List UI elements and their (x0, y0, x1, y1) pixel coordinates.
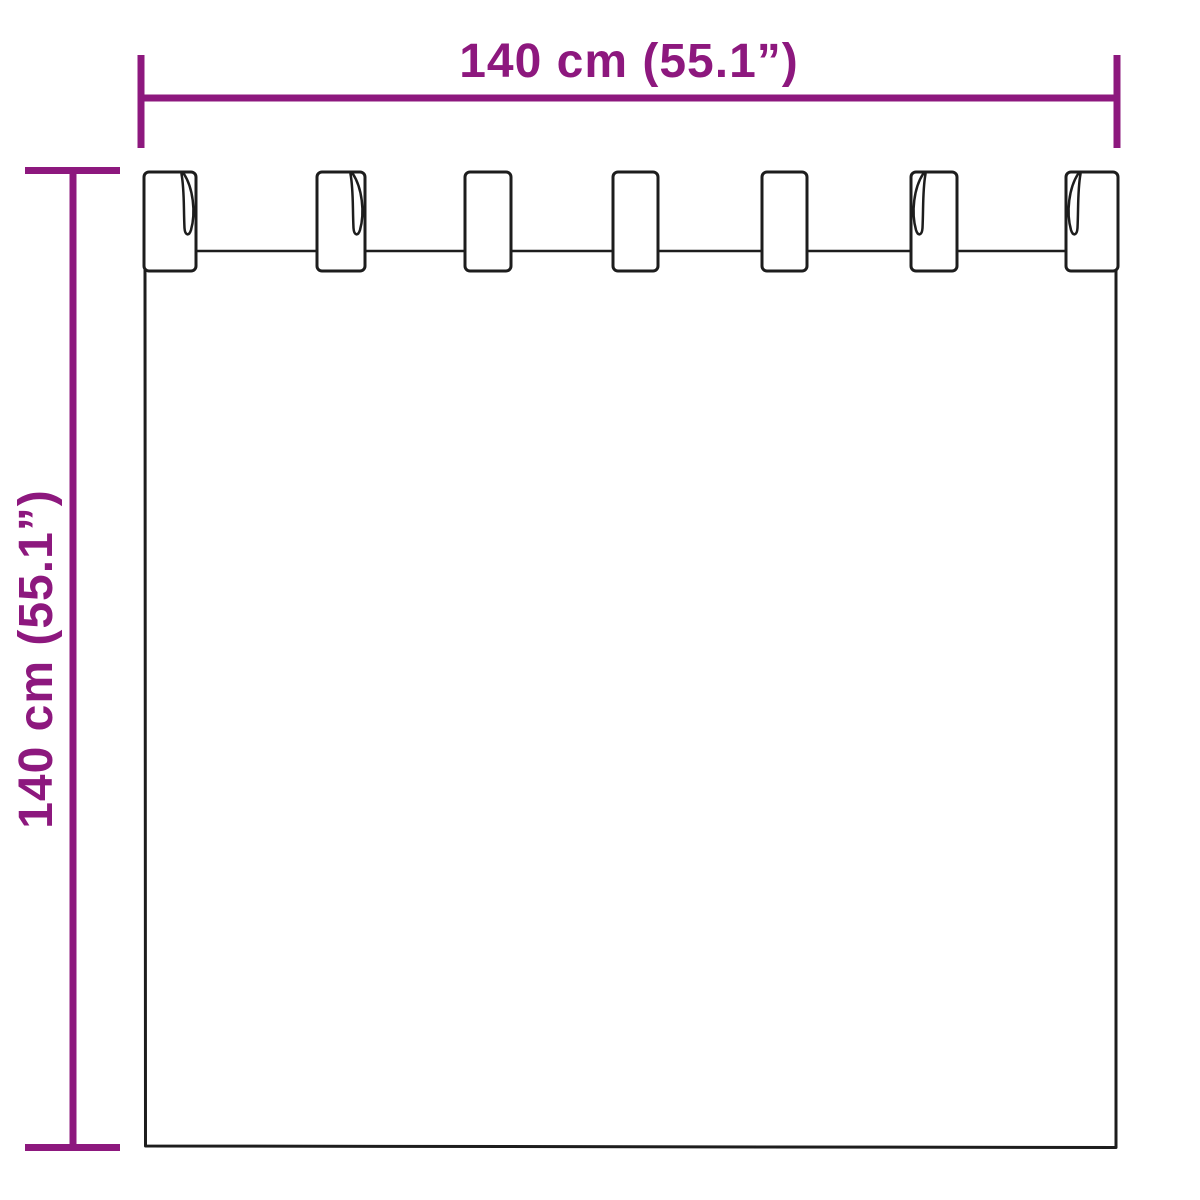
width-dimension-bar (141, 95, 1117, 102)
curtain-tab (613, 172, 658, 271)
diagram-canvas (0, 0, 1200, 1200)
curtain-panel (145, 268, 1116, 1148)
curtain-tab (762, 172, 807, 271)
curtain-tab (465, 172, 511, 271)
dimension-diagram: 140 cm (55.1”) 140 cm (55.1”) (0, 0, 1200, 1200)
curtain-drawing (144, 172, 1118, 1148)
height-dimension-tick-top (25, 167, 120, 174)
height-dimension-label: 140 cm (55.1”) (13, 489, 61, 829)
width-dimension-label: 140 cm (55.1”) (141, 38, 1117, 86)
height-dimension-bar (70, 170, 77, 1147)
height-dimension-tick-bottom (25, 1144, 120, 1151)
